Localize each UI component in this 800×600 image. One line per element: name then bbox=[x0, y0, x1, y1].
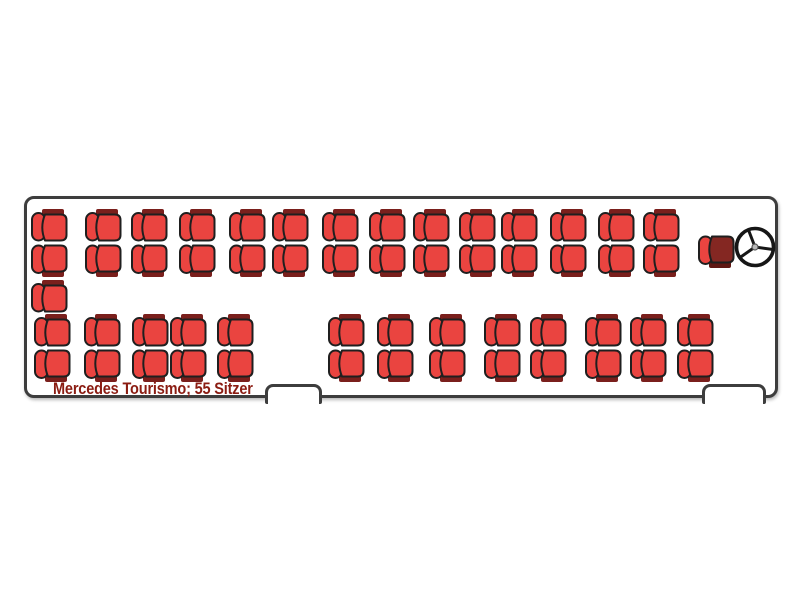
passenger-seat bbox=[132, 314, 170, 348]
middle-door bbox=[265, 384, 322, 404]
passenger-seat bbox=[643, 243, 681, 277]
steering-wheel-icon bbox=[732, 224, 778, 270]
driver-seat bbox=[698, 234, 736, 268]
passenger-seat bbox=[677, 314, 715, 348]
passenger-seat bbox=[179, 243, 217, 277]
passenger-seat bbox=[630, 314, 668, 348]
passenger-seat bbox=[550, 209, 588, 243]
passenger-seat bbox=[272, 243, 310, 277]
passenger-seat bbox=[459, 243, 497, 277]
passenger-seat bbox=[413, 243, 451, 277]
passenger-seat bbox=[31, 280, 69, 314]
passenger-seat bbox=[429, 314, 467, 348]
passenger-seat bbox=[272, 209, 310, 243]
passenger-seat bbox=[322, 209, 360, 243]
passenger-seat bbox=[217, 314, 255, 348]
passenger-seat bbox=[131, 243, 169, 277]
passenger-seat bbox=[377, 314, 415, 348]
bus-outline: Mercedes Tourismo; 55 Sitzer bbox=[24, 196, 778, 398]
passenger-seat bbox=[132, 348, 170, 382]
passenger-seat bbox=[585, 348, 623, 382]
passenger-seat bbox=[429, 348, 467, 382]
passenger-seat bbox=[31, 209, 69, 243]
passenger-seat bbox=[170, 314, 208, 348]
passenger-seat bbox=[501, 243, 539, 277]
passenger-seat bbox=[85, 243, 123, 277]
passenger-seat bbox=[31, 243, 69, 277]
passenger-seat bbox=[328, 348, 366, 382]
passenger-seat bbox=[459, 209, 497, 243]
passenger-seat bbox=[643, 209, 681, 243]
passenger-seat bbox=[630, 348, 668, 382]
passenger-seat bbox=[322, 243, 360, 277]
passenger-seat bbox=[369, 243, 407, 277]
passenger-seat bbox=[550, 243, 588, 277]
passenger-seat bbox=[84, 314, 122, 348]
passenger-seat bbox=[484, 314, 522, 348]
bus-label: Mercedes Tourismo; 55 Sitzer bbox=[53, 380, 253, 399]
passenger-seat bbox=[217, 348, 255, 382]
passenger-seat bbox=[170, 348, 208, 382]
passenger-seat bbox=[677, 348, 715, 382]
passenger-seat bbox=[585, 314, 623, 348]
passenger-seat bbox=[413, 209, 451, 243]
passenger-seat bbox=[530, 348, 568, 382]
passenger-seat bbox=[369, 209, 407, 243]
passenger-seat bbox=[598, 243, 636, 277]
passenger-seat bbox=[34, 314, 72, 348]
passenger-seat bbox=[84, 348, 122, 382]
passenger-seat bbox=[328, 314, 366, 348]
front-door bbox=[702, 384, 766, 404]
passenger-seat bbox=[501, 209, 539, 243]
passenger-seat bbox=[377, 348, 415, 382]
passenger-seat bbox=[229, 209, 267, 243]
passenger-seat bbox=[229, 243, 267, 277]
passenger-seat bbox=[34, 348, 72, 382]
passenger-seat bbox=[484, 348, 522, 382]
bus-seating-diagram: Mercedes Tourismo; 55 Sitzer bbox=[0, 0, 800, 600]
passenger-seat bbox=[530, 314, 568, 348]
passenger-seat bbox=[131, 209, 169, 243]
passenger-seat bbox=[598, 209, 636, 243]
passenger-seat bbox=[85, 209, 123, 243]
passenger-seat bbox=[179, 209, 217, 243]
